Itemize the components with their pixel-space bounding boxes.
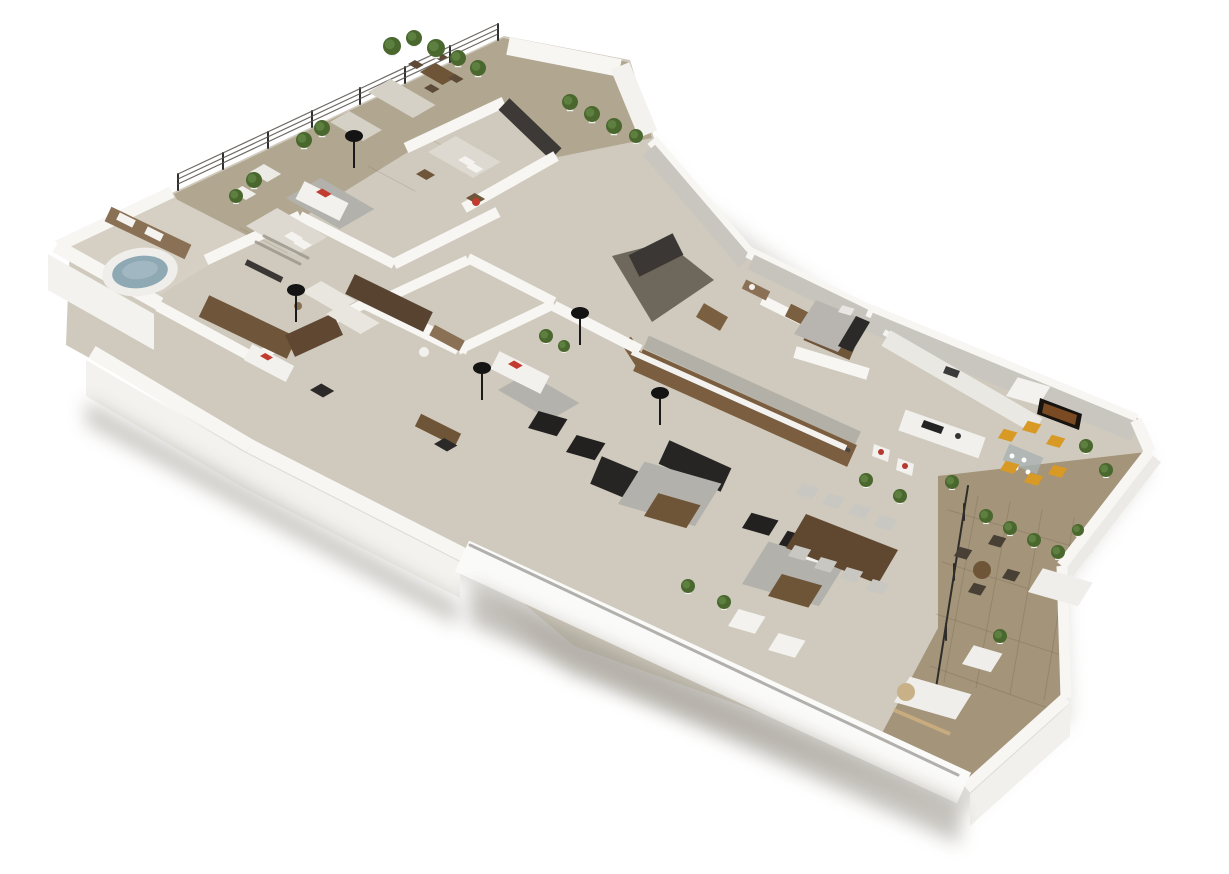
potted-plant-leaf	[894, 491, 902, 499]
nook-plate	[1010, 454, 1015, 459]
potted-plant-leaf	[682, 581, 690, 589]
potted-plant-leaf	[559, 342, 566, 349]
bistro-table	[973, 561, 991, 579]
floor-lamp-shade	[651, 387, 669, 399]
potted-plant-leaf	[408, 32, 417, 41]
potted-plant-leaf	[1073, 526, 1080, 533]
nook-picture-art	[902, 463, 908, 469]
floorplan-scene	[48, 24, 1161, 844]
potted-plant-leaf	[718, 597, 726, 605]
floorplan-canvas	[0, 0, 1229, 874]
topbed-red-item	[472, 198, 480, 206]
outdoor-round-rug	[897, 683, 915, 701]
potted-plant-leaf	[298, 134, 307, 143]
potted-plant-leaf	[540, 331, 548, 339]
potted-plant-leaf	[586, 108, 595, 117]
floor-lamp-shade	[345, 130, 363, 142]
potted-plant-leaf	[946, 477, 954, 485]
nook-picture-art	[878, 449, 884, 455]
terrace-dining-chair	[408, 60, 424, 69]
potted-plant-leaf	[994, 631, 1002, 639]
floor-lamp-shade	[287, 284, 305, 296]
potted-plant-leaf	[429, 41, 439, 51]
potted-plant-leaf	[385, 39, 395, 49]
potted-plant-leaf	[1052, 547, 1060, 555]
potted-plant-leaf	[1080, 441, 1088, 449]
potted-plant-leaf	[452, 52, 461, 61]
potted-plant-leaf	[248, 174, 257, 183]
midbath-toilet	[419, 347, 429, 357]
potted-plant-leaf	[980, 511, 988, 519]
potted-plant-leaf	[1100, 465, 1108, 473]
potted-plant-leaf	[316, 122, 325, 131]
potted-plant-leaf	[230, 191, 238, 199]
bedroom2-sink-basin	[749, 284, 755, 290]
potted-plant-leaf	[608, 120, 617, 129]
potted-plant-leaf	[860, 475, 868, 483]
potted-plant-leaf	[472, 62, 481, 71]
island-kettle	[955, 433, 961, 439]
potted-plant-leaf	[1028, 535, 1036, 543]
floorplan-svg	[0, 0, 1229, 874]
potted-plant-leaf	[564, 96, 573, 105]
floor-lamp-shade	[571, 307, 589, 319]
nook-plate	[1022, 458, 1027, 463]
potted-plant-leaf	[630, 131, 638, 139]
potted-plant-leaf	[1004, 523, 1012, 531]
floor-lamp-shade	[473, 362, 491, 374]
